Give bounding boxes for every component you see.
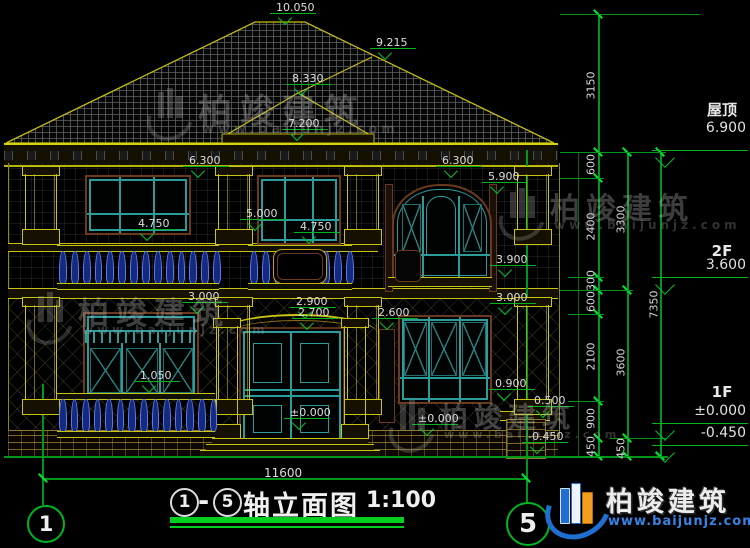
axis-bubble-1: 1: [27, 505, 65, 543]
baluster: [163, 399, 171, 432]
chain-dim-label: 600: [585, 280, 598, 324]
title-axis-to: 5: [213, 488, 242, 517]
baluster: [59, 399, 67, 432]
baluster: [71, 251, 79, 284]
bottom-dim-label: 11600: [264, 466, 302, 480]
dim-mark-line: [436, 166, 482, 167]
baluster: [128, 399, 136, 432]
door-column-base: [341, 424, 369, 439]
dim-mark-line: [284, 418, 330, 419]
baluster: [71, 399, 79, 432]
watermark-logo-icon: [176, 96, 183, 118]
brand-logo: 柏竣建筑 www.baijunjz.com: [544, 474, 744, 536]
baluster: [186, 399, 194, 432]
baluster: [175, 399, 183, 432]
dim-mark-line: [490, 303, 536, 304]
watermark-logo-icon: [400, 404, 406, 430]
watermark-logo-icon: [167, 88, 173, 118]
baluster: [178, 251, 186, 284]
title-underline-thick: [170, 517, 404, 523]
dim-mark-line: [134, 381, 180, 382]
watermark-logo-icon: [56, 300, 63, 322]
baluster: [130, 251, 138, 284]
baluster: [117, 399, 125, 432]
title-axis-from: 1: [170, 488, 199, 517]
dim-mark-line: [294, 232, 340, 233]
balustrade: [57, 399, 219, 430]
baluster: [95, 251, 103, 284]
baluster: [142, 251, 150, 284]
pilaster-base: [22, 399, 60, 415]
balustrade: [57, 251, 223, 282]
watermark-logo-icon: [528, 196, 535, 218]
watermark-logo-icon: [158, 92, 164, 118]
watermark: 柏竣建筑www.baijunjz.com: [388, 396, 728, 460]
eave-dentils: [4, 151, 558, 160]
baluster: [140, 399, 148, 432]
watermark-logo-icon: [418, 408, 425, 430]
pilaster-shaft: [218, 174, 250, 229]
arch-sill-panel: [395, 250, 421, 282]
drawing-scale: 1:100: [366, 488, 436, 513]
title-dash: -: [198, 486, 211, 517]
dim-mark-line: [372, 318, 418, 319]
watermark: 柏竣建筑www.baijunjz.com: [26, 288, 366, 352]
baluster: [262, 251, 270, 284]
dim-mark-line: [240, 219, 286, 220]
watermark-url-text: www.baijunjz.com: [444, 428, 620, 441]
pilaster-shaft: [25, 174, 57, 229]
cad-elevation-drawing: 11600 1 5 1 - 5 轴立面图 1:100 柏竣建筑 www.baij…: [0, 0, 750, 548]
dim-mark-line: [490, 265, 536, 266]
baluster: [82, 399, 90, 432]
dim-mark-line: [370, 48, 416, 49]
pilaster-base: [215, 229, 253, 245]
level-value: 3.600: [686, 257, 746, 273]
watermark-logo-icon: [409, 400, 415, 430]
watermark-logo-icon: [519, 188, 525, 218]
pilaster-base: [344, 229, 382, 245]
baluster: [346, 251, 354, 284]
level-name: 屋顶: [700, 99, 744, 120]
balustrade-bottom-rail: [57, 431, 215, 438]
title-underline-thin: [170, 526, 404, 528]
dim-connector: [560, 14, 700, 15]
baluster: [201, 251, 209, 284]
chain-dim-label: 3150: [585, 64, 598, 108]
logo-url-text: www.baijunjz.com: [608, 514, 750, 529]
baluster: [210, 399, 218, 432]
watermark-url-text: www.baijunjz.com: [202, 122, 399, 137]
baluster: [250, 251, 258, 284]
baluster: [94, 399, 102, 432]
chain-dim-label: 3600: [615, 341, 628, 385]
pilaster-shaft: [347, 174, 379, 229]
baluster: [334, 251, 342, 284]
baluster: [152, 399, 160, 432]
watermark-url-text: www.baijunjz.com: [82, 323, 269, 337]
watermark-logo-icon: [47, 292, 53, 322]
baluster: [154, 251, 162, 284]
baluster: [213, 251, 221, 284]
watermark-url-text: www.baijunjz.com: [554, 218, 741, 232]
chain-dim-label: 600: [585, 143, 598, 187]
window-1f-right: [398, 315, 492, 404]
dim-mark-line: [489, 389, 535, 390]
pilaster-base: [22, 229, 60, 245]
baluster: [198, 399, 206, 432]
baluster: [105, 399, 113, 432]
baluster: [118, 251, 126, 284]
baluster: [59, 251, 67, 284]
baluster: [83, 251, 91, 284]
level-value: 6.900: [686, 120, 746, 136]
dim-mark-line: [270, 13, 316, 14]
dim-mark-line: [183, 166, 229, 167]
watermark-logo-icon: [510, 192, 516, 218]
balcony-ornament-panel: [273, 249, 327, 284]
watermark-logo-icon: [38, 296, 44, 322]
dim-mark-line: [482, 182, 528, 183]
baluster: [189, 251, 197, 284]
baluster: [166, 251, 174, 284]
watermark: 柏竣建筑www.baijunjz.com: [498, 184, 750, 248]
dim-connector: [560, 152, 666, 153]
dim-mark-line: [132, 229, 178, 230]
chain-dim-label: 2100: [585, 335, 598, 379]
baluster: [106, 251, 114, 284]
watermark: 柏竣建筑www.baijunjz.com: [146, 84, 486, 148]
